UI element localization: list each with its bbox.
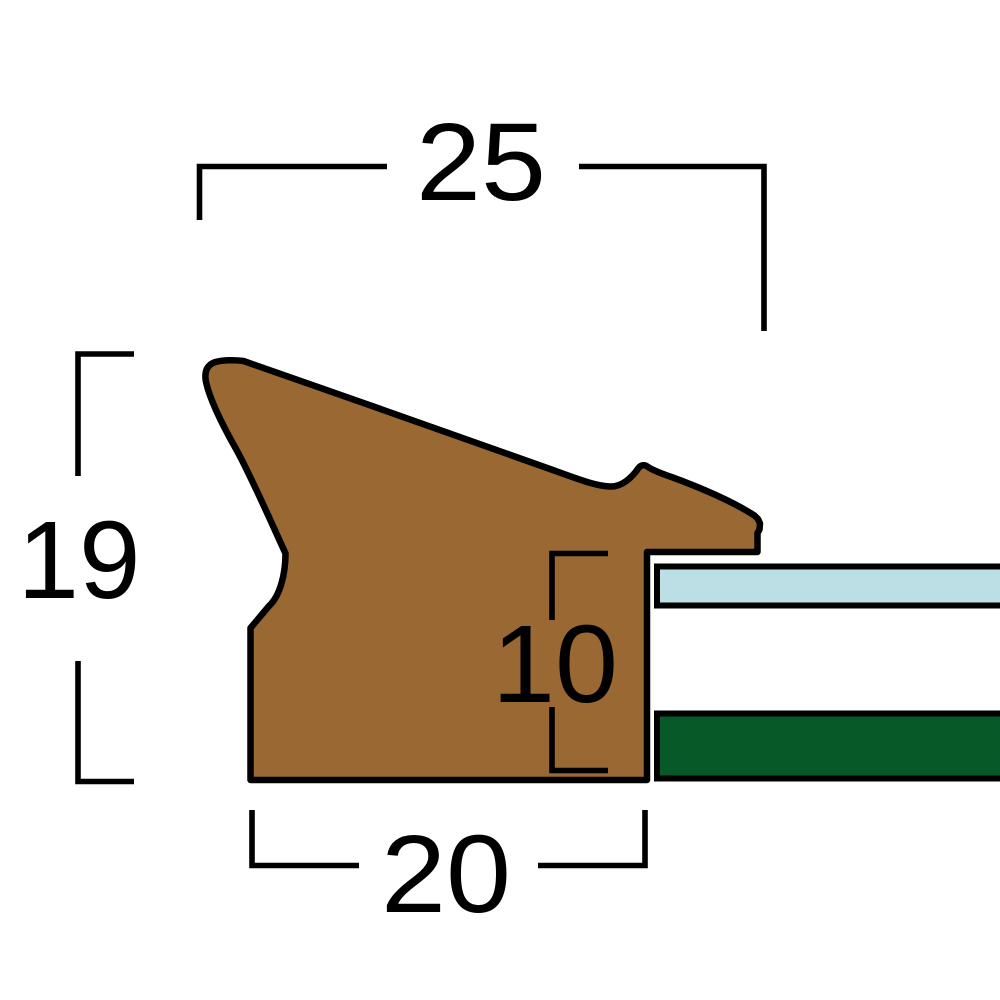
svg-text:19: 19 — [18, 499, 141, 622]
svg-text:20: 20 — [381, 813, 511, 936]
svg-text:25: 25 — [416, 101, 546, 224]
svg-text:10: 10 — [492, 603, 618, 726]
